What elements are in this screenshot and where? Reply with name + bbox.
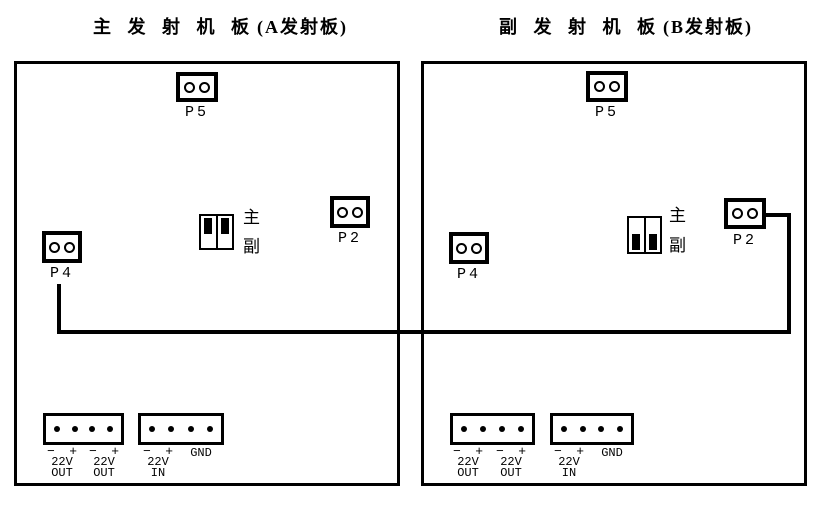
- board-a-jumper-main-label: 主: [243, 208, 260, 228]
- pin-dot-icon: [207, 426, 213, 432]
- pin-dot-icon: [54, 426, 60, 432]
- pin-hole-icon: [609, 81, 620, 92]
- pin-hole-icon: [64, 242, 75, 253]
- pin-dot-icon: [499, 426, 505, 432]
- pin-dot-icon: [72, 426, 78, 432]
- direction-label: OUT: [44, 468, 80, 479]
- board-b-p4-connector: [449, 232, 489, 264]
- board-b-jumper-block: [627, 216, 662, 254]
- pin-hole-icon: [732, 208, 743, 219]
- pin-dot-icon: [188, 426, 194, 432]
- jumper-cell: [629, 218, 644, 252]
- board-b-title: 副 发 射 机 板(B发射板): [499, 16, 753, 38]
- board-a-power-out-connector: [43, 413, 124, 445]
- board-b-power-in-connector: [550, 413, 634, 445]
- power-label-group-22v-out: − + 22V OUT: [493, 446, 529, 479]
- jumper-cell: [644, 218, 661, 252]
- pin-hole-icon: [199, 82, 210, 93]
- board-a-jumper-block: [199, 214, 234, 250]
- jumper-cell: [201, 216, 216, 248]
- direction-label: OUT: [450, 468, 486, 479]
- board-a-p4-label: P4: [42, 265, 82, 282]
- pin-dot-icon: [518, 426, 524, 432]
- pin-dot-icon: [107, 426, 113, 432]
- board-a-p4-connector: [42, 231, 82, 263]
- board-a-power-in-connector: [138, 413, 224, 445]
- pin-dot-icon: [461, 426, 467, 432]
- power-label-group-22v-out: − + 22V OUT: [450, 446, 486, 479]
- power-label-group-22v-out: − + 22V OUT: [86, 446, 122, 479]
- pin-dot-icon: [561, 426, 567, 432]
- pin-dot-icon: [617, 426, 623, 432]
- board-b-p4-label: P4: [449, 266, 489, 283]
- board-a-title-main: 主 发 射 机 板: [93, 17, 255, 37]
- board-b-p2-connector: [724, 198, 766, 229]
- jumper-bar: [649, 234, 657, 250]
- power-label-group-22v-out: − + 22V OUT: [44, 446, 80, 479]
- board-b-jumper-main-label: 主: [669, 206, 686, 226]
- direction-label: OUT: [493, 468, 529, 479]
- board-a-title: 主 发 射 机 板(A发射板): [93, 16, 348, 38]
- pin-hole-icon: [747, 208, 758, 219]
- board-b-p2-label: P2: [724, 232, 766, 249]
- board-a-p5-connector: [176, 72, 218, 102]
- pin-dot-icon: [598, 426, 604, 432]
- pin-hole-icon: [456, 243, 467, 254]
- jumper-cell: [216, 216, 233, 248]
- board-b-title-main: 副 发 射 机 板: [499, 17, 661, 37]
- pin-dot-icon: [580, 426, 586, 432]
- wire-segment-p4a-drop: [57, 284, 61, 334]
- pin-hole-icon: [471, 243, 482, 254]
- board-a-p2-connector: [330, 196, 370, 228]
- jumper-bar: [221, 218, 229, 234]
- jumper-bar: [632, 234, 640, 250]
- board-b-jumper-sub-label: 副: [669, 236, 686, 256]
- gnd-label: GND: [181, 448, 221, 459]
- wiring-diagram: 主 发 射 机 板(A发射板) 副 发 射 机 板(B发射板) P5 P2 P4…: [0, 0, 820, 509]
- direction-label: OUT: [86, 468, 122, 479]
- wire-segment-horizontal: [57, 330, 791, 334]
- direction-label: IN: [140, 468, 176, 479]
- board-b-power-out-connector: [450, 413, 535, 445]
- power-label-group-22v-in: − + 22V IN: [551, 446, 587, 479]
- board-b-p5-label: P5: [586, 104, 628, 121]
- pin-dot-icon: [168, 426, 174, 432]
- jumper-bar: [204, 218, 212, 234]
- pin-hole-icon: [594, 81, 605, 92]
- wire-segment-p2b-stub: [766, 213, 791, 217]
- board-b-p5-connector: [586, 71, 628, 102]
- pin-hole-icon: [49, 242, 60, 253]
- board-a-p2-label: P2: [330, 230, 370, 247]
- pin-dot-icon: [149, 426, 155, 432]
- board-a-jumper-sub-label: 副: [243, 237, 260, 257]
- board-b-title-paren: (B发射板): [663, 17, 753, 37]
- pin-dot-icon: [480, 426, 486, 432]
- pin-hole-icon: [352, 207, 363, 218]
- board-a-title-paren: (A发射板): [257, 17, 348, 37]
- pin-hole-icon: [337, 207, 348, 218]
- board-a-p5-label: P5: [176, 104, 218, 121]
- direction-label: IN: [551, 468, 587, 479]
- pin-dot-icon: [89, 426, 95, 432]
- wire-segment-riser: [787, 213, 791, 334]
- gnd-label: GND: [592, 448, 632, 459]
- pin-hole-icon: [184, 82, 195, 93]
- power-label-group-22v-in: − + 22V IN: [140, 446, 176, 479]
